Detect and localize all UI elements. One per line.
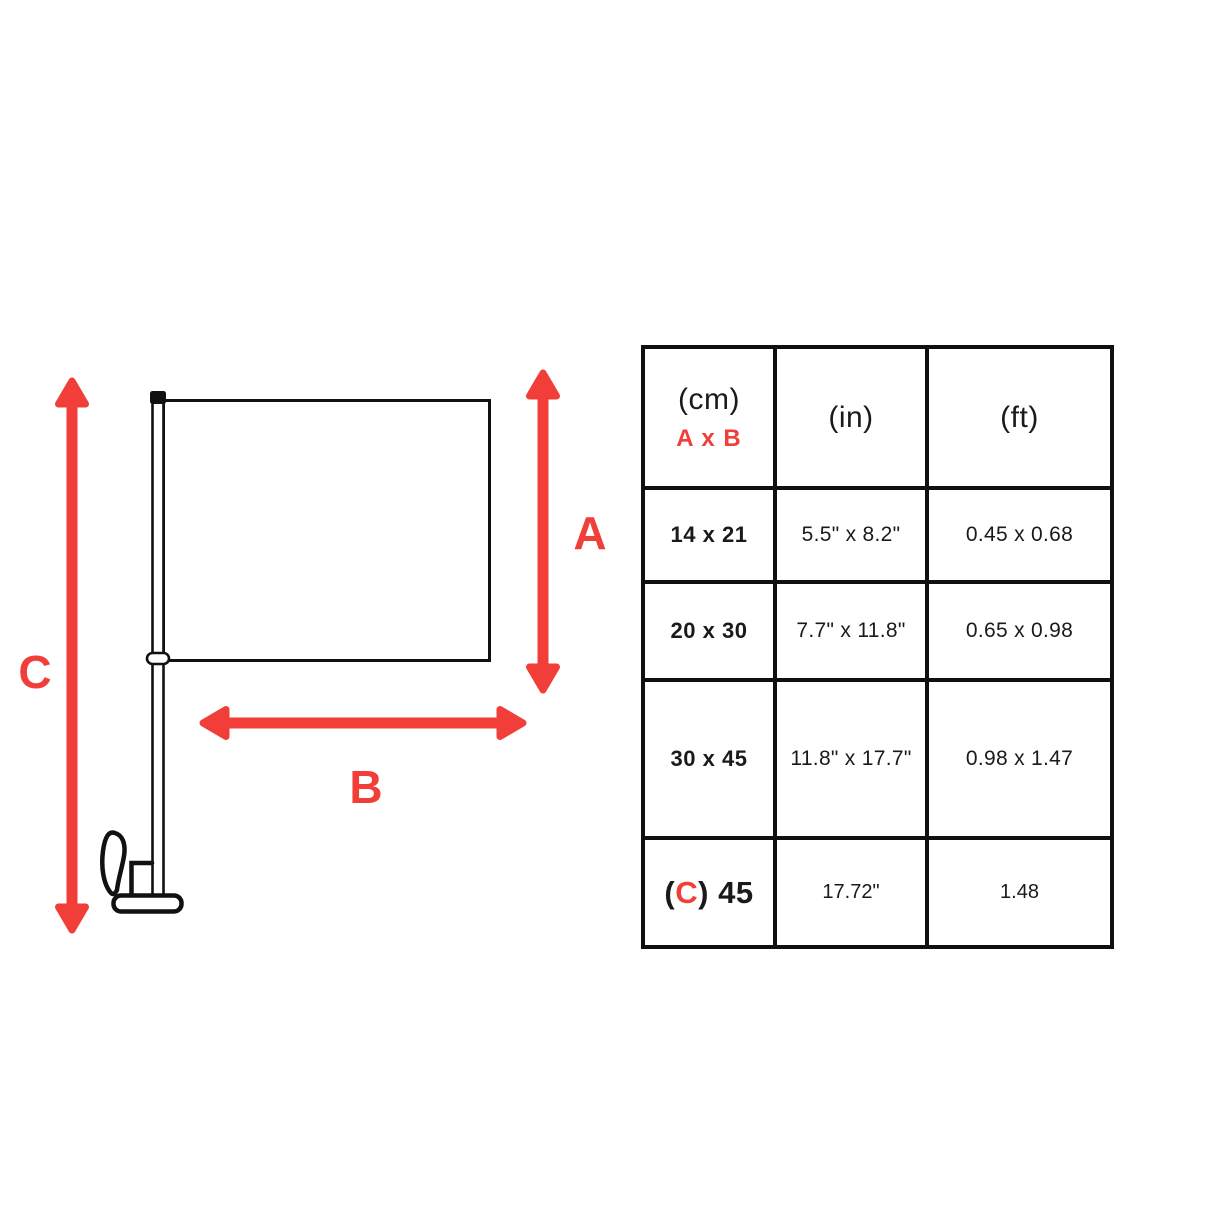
red-c-letter: C — [675, 875, 698, 911]
window-clip — [102, 833, 181, 912]
cell-size-ft: 0.65 x 0.98 — [929, 584, 1110, 682]
table-header-in: (in) — [777, 349, 929, 490]
paren-open: ( — [664, 875, 675, 911]
cell-size-ft: 0.98 x 1.47 — [929, 682, 1110, 840]
size-table: (cm) A x B (in) (ft) 14 x 21 5.5" x 8.2"… — [641, 345, 1114, 949]
cell-size-in: 11.8" x 17.7" — [777, 682, 929, 840]
cell-size-cm: 14 x 21 — [645, 490, 777, 584]
cell-size-ft: 0.45 x 0.68 — [929, 490, 1110, 584]
pole-cap — [150, 391, 166, 404]
table-header-cm: (cm) A x B — [645, 349, 777, 490]
dimension-arrow-a — [530, 373, 557, 690]
cell-size-in: 5.5" x 8.2" — [777, 490, 929, 584]
cell-pole-length-ft: 1.48 — [929, 840, 1110, 945]
dimension-arrow-b — [203, 710, 523, 737]
dimension-arrow-c — [59, 381, 86, 930]
flag-pole — [153, 400, 164, 900]
label-c: C — [18, 649, 51, 695]
label-a: A — [573, 510, 606, 556]
paren-close-value: ) 45 — [698, 875, 753, 911]
car-flag-size-chart: C A B (cm) A x B (in) (ft) 14 x 21 5.5" … — [0, 0, 1214, 1214]
table-header-ft: (ft) — [929, 349, 1110, 490]
label-b: B — [349, 764, 382, 810]
header-axb-label: A x B — [676, 425, 741, 453]
header-cm-unit: (cm) — [678, 383, 740, 417]
pole-collar — [147, 653, 169, 664]
cell-size-cm: 20 x 30 — [645, 584, 777, 682]
cell-size-cm: 30 x 45 — [645, 682, 777, 840]
cell-size-in: 7.7" x 11.8" — [777, 584, 929, 682]
cell-pole-length-cm: (C) 45 — [645, 840, 777, 945]
flag-outline — [164, 401, 490, 661]
cell-pole-length-in: 17.72" — [777, 840, 929, 945]
